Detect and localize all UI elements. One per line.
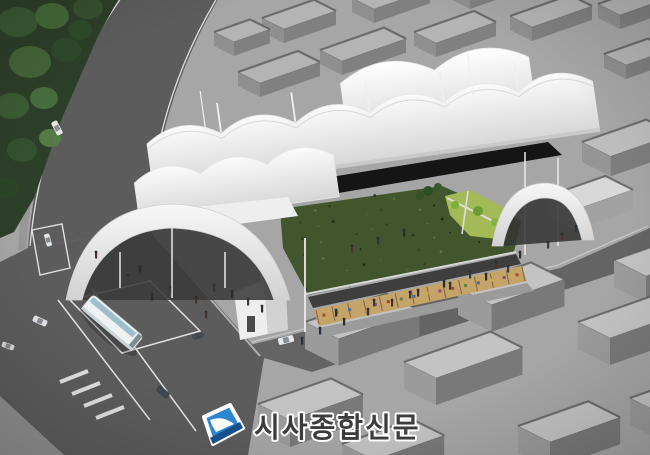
rendering-image: 시사종합신문	[0, 0, 650, 455]
publisher-name: 시사종합신문	[254, 411, 421, 444]
scene-canvas: 시사종합신문	[0, 0, 650, 455]
vignette	[0, 0, 650, 455]
